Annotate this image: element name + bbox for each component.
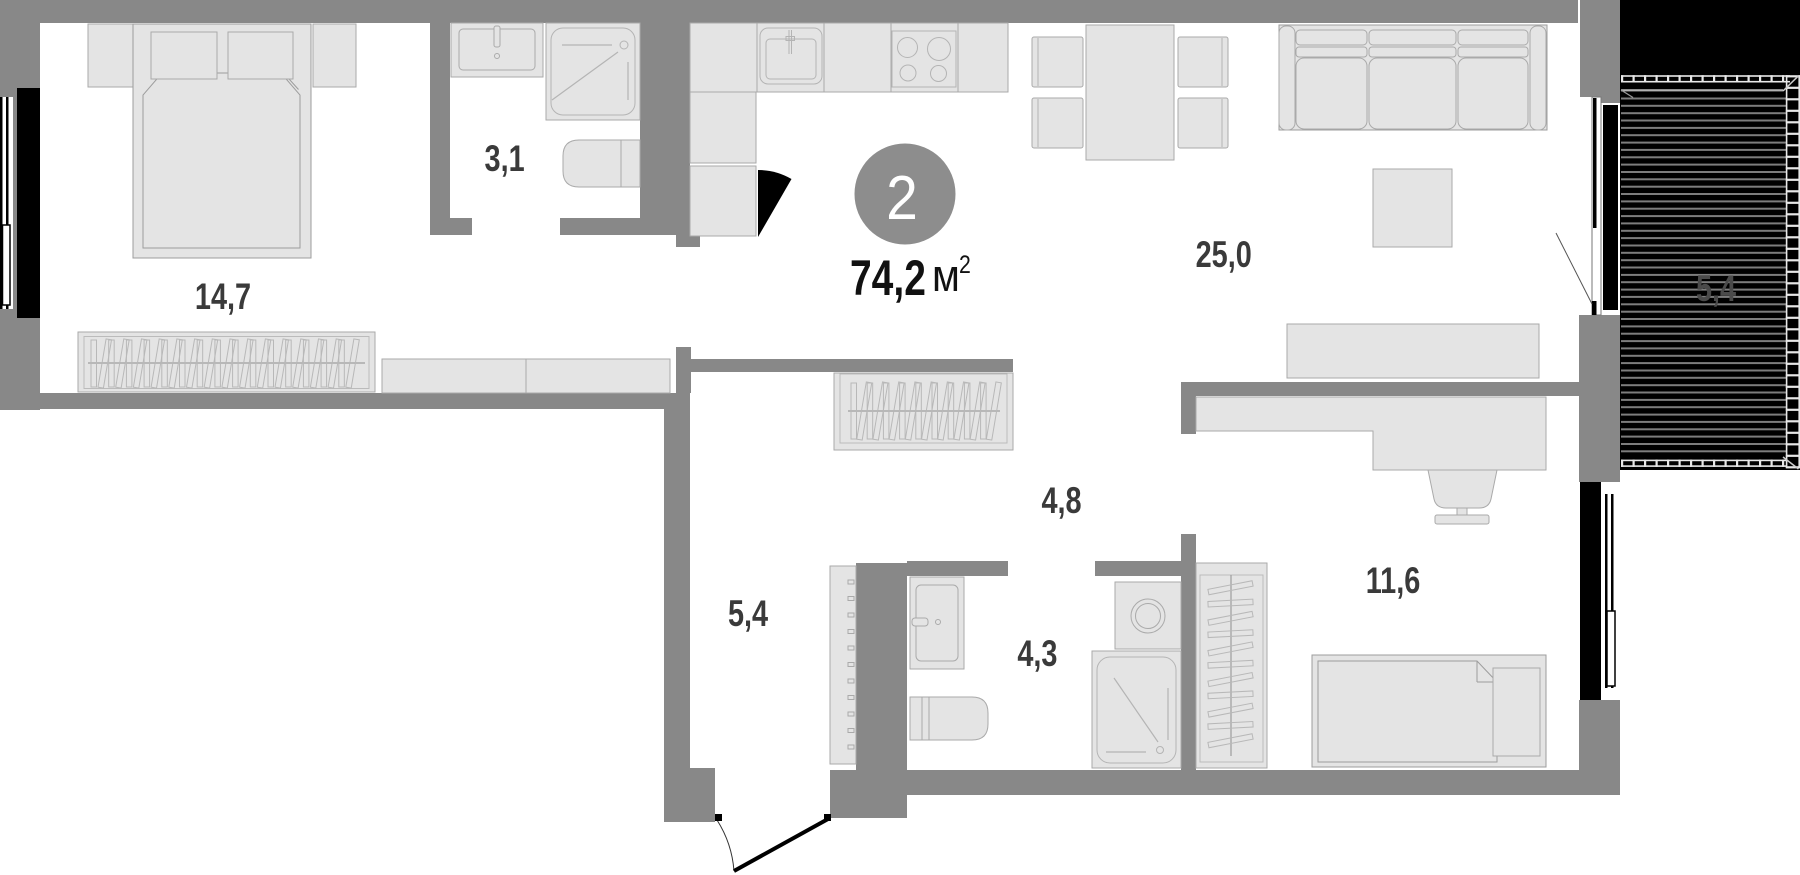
- svg-text:2: 2: [959, 250, 971, 278]
- svg-text:3,1: 3,1: [485, 139, 525, 180]
- svg-text:м: м: [932, 251, 960, 301]
- svg-text:11,6: 11,6: [1366, 561, 1421, 602]
- svg-text:4,3: 4,3: [1017, 634, 1057, 675]
- svg-text:5,4: 5,4: [728, 594, 769, 635]
- svg-text:14,7: 14,7: [195, 277, 251, 318]
- svg-text:74,2: 74,2: [850, 249, 926, 306]
- svg-text:4,8: 4,8: [1041, 481, 1081, 522]
- svg-text:5,4: 5,4: [1696, 269, 1737, 310]
- svg-text:25,0: 25,0: [1196, 235, 1252, 276]
- svg-text:2: 2: [886, 163, 918, 233]
